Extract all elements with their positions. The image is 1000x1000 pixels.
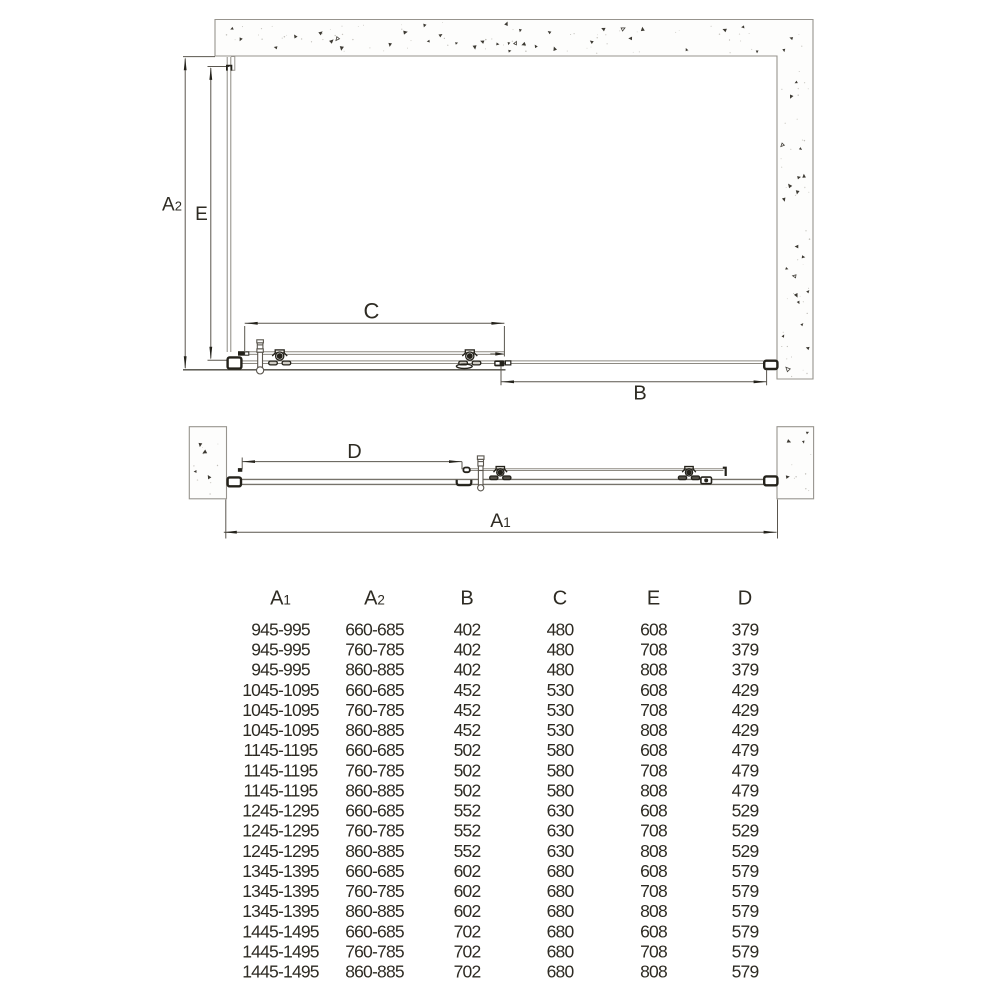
svg-text:579: 579 bbox=[732, 921, 759, 941]
svg-text:E: E bbox=[195, 204, 208, 225]
svg-text:702: 702 bbox=[454, 962, 481, 982]
svg-text:1245-1295: 1245-1295 bbox=[242, 821, 319, 841]
svg-text:708: 708 bbox=[640, 760, 667, 780]
svg-text:402: 402 bbox=[454, 640, 481, 660]
svg-text:1145-1195: 1145-1195 bbox=[244, 781, 318, 801]
svg-text:479: 479 bbox=[732, 740, 759, 760]
svg-text:608: 608 bbox=[640, 861, 667, 881]
svg-text:708: 708 bbox=[640, 941, 667, 961]
svg-text:452: 452 bbox=[454, 700, 481, 720]
svg-text:760-785: 760-785 bbox=[345, 881, 404, 901]
svg-text:860-885: 860-885 bbox=[345, 781, 404, 801]
svg-text:760-785: 760-785 bbox=[345, 760, 404, 780]
svg-text:379: 379 bbox=[732, 660, 759, 680]
svg-text:429: 429 bbox=[732, 720, 759, 740]
svg-text:A2: A2 bbox=[364, 588, 385, 610]
svg-text:552: 552 bbox=[454, 841, 481, 861]
svg-text:760-785: 760-785 bbox=[345, 640, 404, 660]
svg-text:C: C bbox=[364, 299, 380, 324]
svg-text:680: 680 bbox=[547, 921, 575, 941]
svg-text:1145-1195: 1145-1195 bbox=[244, 740, 318, 760]
svg-text:808: 808 bbox=[640, 660, 667, 680]
svg-text:A2: A2 bbox=[162, 195, 182, 216]
svg-text:402: 402 bbox=[454, 620, 481, 640]
svg-text:502: 502 bbox=[454, 781, 481, 801]
svg-text:680: 680 bbox=[547, 881, 575, 901]
svg-text:1445-1495: 1445-1495 bbox=[242, 921, 319, 941]
svg-text:552: 552 bbox=[454, 801, 481, 821]
svg-text:D: D bbox=[347, 441, 361, 463]
svg-text:429: 429 bbox=[732, 700, 759, 720]
svg-text:808: 808 bbox=[640, 962, 667, 982]
svg-text:E: E bbox=[647, 588, 660, 610]
svg-text:808: 808 bbox=[640, 901, 667, 921]
svg-text:402: 402 bbox=[454, 660, 481, 680]
svg-text:1045-1095: 1045-1095 bbox=[242, 720, 319, 740]
svg-text:1045-1095: 1045-1095 bbox=[242, 700, 319, 720]
svg-text:860-885: 860-885 bbox=[345, 901, 404, 921]
svg-text:860-885: 860-885 bbox=[345, 720, 404, 740]
svg-text:602: 602 bbox=[454, 881, 481, 901]
svg-text:480: 480 bbox=[547, 640, 575, 660]
svg-text:1045-1095: 1045-1095 bbox=[242, 680, 319, 700]
svg-text:502: 502 bbox=[454, 740, 481, 760]
svg-text:760-785: 760-785 bbox=[345, 821, 404, 841]
svg-text:860-885: 860-885 bbox=[345, 841, 404, 861]
svg-text:1445-1495: 1445-1495 bbox=[242, 941, 319, 961]
svg-text:479: 479 bbox=[732, 760, 759, 780]
svg-text:945-995: 945-995 bbox=[251, 660, 310, 680]
svg-text:1345-1395: 1345-1395 bbox=[242, 861, 319, 881]
svg-text:579: 579 bbox=[732, 901, 759, 921]
svg-text:A1: A1 bbox=[270, 588, 291, 610]
svg-text:660-685: 660-685 bbox=[345, 801, 404, 821]
svg-text:680: 680 bbox=[547, 941, 575, 961]
svg-text:660-685: 660-685 bbox=[345, 861, 404, 881]
svg-text:602: 602 bbox=[454, 861, 481, 881]
svg-text:529: 529 bbox=[732, 841, 759, 861]
svg-text:1445-1495: 1445-1495 bbox=[242, 962, 319, 982]
svg-text:608: 608 bbox=[640, 680, 667, 700]
svg-text:808: 808 bbox=[640, 781, 667, 801]
svg-text:630: 630 bbox=[547, 801, 575, 821]
svg-text:580: 580 bbox=[547, 760, 575, 780]
svg-text:660-685: 660-685 bbox=[345, 921, 404, 941]
svg-text:579: 579 bbox=[732, 962, 759, 982]
svg-text:530: 530 bbox=[547, 720, 575, 740]
svg-text:579: 579 bbox=[732, 881, 759, 901]
svg-text:379: 379 bbox=[732, 620, 759, 640]
svg-text:C: C bbox=[553, 588, 567, 610]
svg-text:708: 708 bbox=[640, 640, 667, 660]
svg-text:602: 602 bbox=[454, 901, 481, 921]
svg-text:608: 608 bbox=[640, 620, 667, 640]
svg-text:429: 429 bbox=[732, 680, 759, 700]
svg-text:580: 580 bbox=[547, 781, 575, 801]
svg-text:1145-1195: 1145-1195 bbox=[244, 760, 318, 780]
svg-text:702: 702 bbox=[454, 941, 481, 961]
svg-text:660-685: 660-685 bbox=[345, 680, 404, 700]
svg-text:480: 480 bbox=[547, 620, 575, 640]
svg-text:1245-1295: 1245-1295 bbox=[242, 801, 319, 821]
svg-text:530: 530 bbox=[547, 700, 575, 720]
svg-text:760-785: 760-785 bbox=[345, 700, 404, 720]
svg-text:945-995: 945-995 bbox=[251, 640, 310, 660]
svg-text:680: 680 bbox=[547, 901, 575, 921]
svg-text:530: 530 bbox=[547, 680, 575, 700]
svg-text:608: 608 bbox=[640, 921, 667, 941]
svg-text:708: 708 bbox=[640, 881, 667, 901]
svg-text:660-685: 660-685 bbox=[345, 620, 404, 640]
svg-text:860-885: 860-885 bbox=[345, 962, 404, 982]
svg-text:502: 502 bbox=[454, 760, 481, 780]
svg-text:808: 808 bbox=[640, 841, 667, 861]
svg-text:702: 702 bbox=[454, 921, 481, 941]
svg-text:760-785: 760-785 bbox=[345, 941, 404, 961]
svg-text:579: 579 bbox=[732, 861, 759, 881]
svg-text:379: 379 bbox=[732, 640, 759, 660]
svg-text:480: 480 bbox=[547, 660, 575, 680]
svg-text:660-685: 660-685 bbox=[345, 740, 404, 760]
svg-text:529: 529 bbox=[732, 801, 759, 821]
svg-text:630: 630 bbox=[547, 821, 575, 841]
svg-text:D: D bbox=[738, 588, 752, 610]
svg-text:608: 608 bbox=[640, 801, 667, 821]
svg-text:808: 808 bbox=[640, 720, 667, 740]
svg-text:452: 452 bbox=[454, 720, 481, 740]
svg-text:945-995: 945-995 bbox=[251, 620, 310, 640]
svg-text:1345-1395: 1345-1395 bbox=[242, 901, 319, 921]
svg-text:479: 479 bbox=[732, 781, 759, 801]
svg-text:630: 630 bbox=[547, 841, 575, 861]
svg-text:579: 579 bbox=[732, 941, 759, 961]
svg-text:452: 452 bbox=[454, 680, 481, 700]
svg-text:680: 680 bbox=[547, 861, 575, 881]
svg-text:1245-1295: 1245-1295 bbox=[242, 841, 319, 861]
svg-text:608: 608 bbox=[640, 740, 667, 760]
svg-text:529: 529 bbox=[732, 821, 759, 841]
svg-text:860-885: 860-885 bbox=[345, 660, 404, 680]
svg-text:708: 708 bbox=[640, 700, 667, 720]
svg-text:680: 680 bbox=[547, 962, 575, 982]
svg-text:A1: A1 bbox=[490, 510, 511, 532]
svg-text:708: 708 bbox=[640, 821, 667, 841]
svg-text:1345-1395: 1345-1395 bbox=[242, 881, 319, 901]
svg-text:580: 580 bbox=[547, 740, 575, 760]
svg-text:B: B bbox=[460, 588, 473, 610]
svg-text:552: 552 bbox=[454, 821, 481, 841]
svg-text:B: B bbox=[633, 383, 646, 405]
